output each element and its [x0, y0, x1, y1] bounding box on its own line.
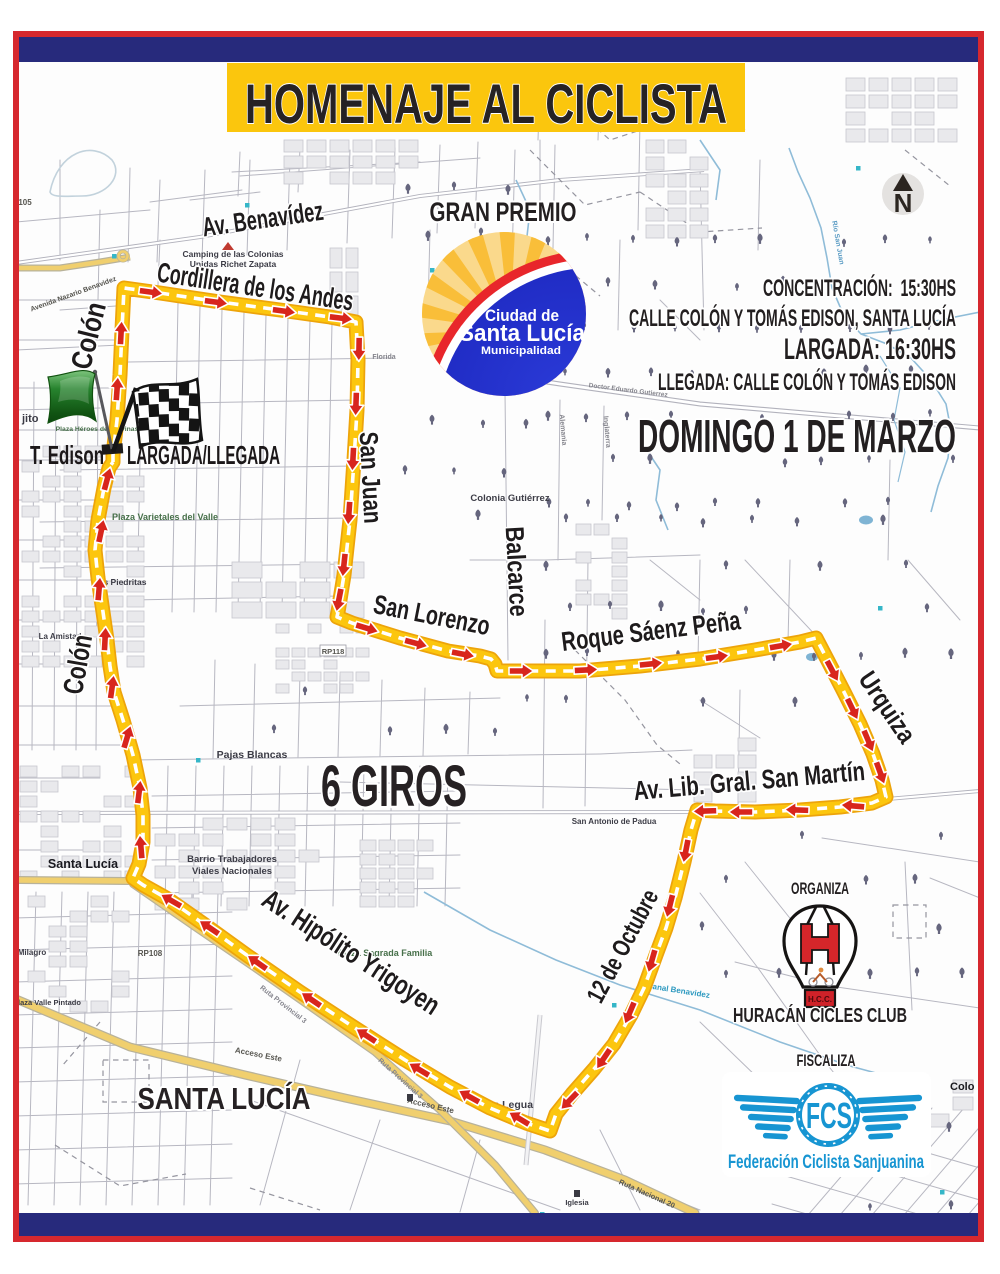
- svg-text:H.C.C.: H.C.C.: [808, 995, 832, 1004]
- svg-text:RP118: RP118: [322, 647, 345, 656]
- svg-text:Milagro: Milagro: [18, 948, 47, 957]
- svg-text:DOMINGO 1 DE MARZO: DOMINGO 1 DE MARZO: [638, 410, 956, 462]
- svg-text:LARGADA/LLEGADA: LARGADA/LLEGADA: [127, 440, 280, 470]
- svg-text:HOMENAJE AL CICLISTA: HOMENAJE AL CICLISTA: [245, 72, 727, 135]
- svg-text:Barrio Trabajadores: Barrio Trabajadores: [187, 854, 277, 865]
- svg-text:jito: jito: [21, 413, 39, 425]
- svg-text:T. Edison: T. Edison: [30, 440, 104, 470]
- svg-text:N: N: [894, 188, 913, 218]
- svg-text:ORGANIZA: ORGANIZA: [791, 879, 849, 898]
- svg-text:FISCALIZA: FISCALIZA: [797, 1051, 856, 1070]
- svg-text:LARGADA: 16:30HS: LARGADA: 16:30HS: [784, 333, 956, 366]
- svg-text:CALLE COLÓN Y TOMÁS EDISON, SA: CALLE COLÓN Y TOMÁS EDISON, SANTA LUCÍA: [629, 304, 956, 332]
- svg-text:Iglesia: Iglesia: [565, 1198, 589, 1207]
- svg-text:Colo: Colo: [950, 1081, 975, 1093]
- svg-text:FCS: FCS: [806, 1095, 852, 1136]
- svg-text:Municipalidad: Municipalidad: [481, 345, 561, 357]
- svg-text:Florida: Florida: [372, 354, 395, 361]
- svg-text:SANTA LUCÍA: SANTA LUCÍA: [138, 1081, 311, 1116]
- svg-text:San Juan: San Juan: [354, 431, 389, 524]
- svg-text:San Antonio de Padua: San Antonio de Padua: [572, 817, 657, 826]
- svg-text:Plaza Varietales del Valle: Plaza Varietales del Valle: [112, 512, 218, 522]
- svg-text:HURACÁN CICLES CLUB: HURACÁN CICLES CLUB: [733, 1004, 907, 1027]
- svg-text:Camping de las Colonias: Camping de las Colonias: [182, 249, 283, 259]
- svg-text:Santa Lucía: Santa Lucía: [48, 857, 119, 871]
- svg-text:105: 105: [18, 198, 32, 207]
- svg-text:Plaza Valle Pintado: Plaza Valle Pintado: [13, 998, 81, 1007]
- svg-text:Pajas Blancas: Pajas Blancas: [217, 749, 288, 761]
- svg-text:Balcarce: Balcarce: [500, 526, 535, 617]
- svg-text:Santa Lucía: Santa Lucía: [459, 320, 585, 347]
- svg-text:Colonia Gutiérrez: Colonia Gutiérrez: [470, 493, 549, 504]
- svg-text:Plaza Héroes de Malvinas: Plaza Héroes de Malvinas: [56, 426, 139, 433]
- svg-text:6 GIROS: 6 GIROS: [321, 754, 467, 819]
- svg-text:CONCENTRACIÓN: 15:30HS: CONCENTRACIÓN: 15:30HS: [763, 274, 956, 302]
- svg-text:LLEGADA: CALLE COLÓN Y TOMÁS E: LLEGADA: CALLE COLÓN Y TOMÁS EDISON: [658, 368, 956, 396]
- svg-text:GRAN PREMIO: GRAN PREMIO: [430, 197, 577, 227]
- svg-text:Viales Nacionales: Viales Nacionales: [192, 866, 272, 877]
- svg-text:Federación Ciclista Sanjuanina: Federación Ciclista Sanjuanina: [728, 1152, 924, 1173]
- svg-text:RP108: RP108: [138, 949, 163, 958]
